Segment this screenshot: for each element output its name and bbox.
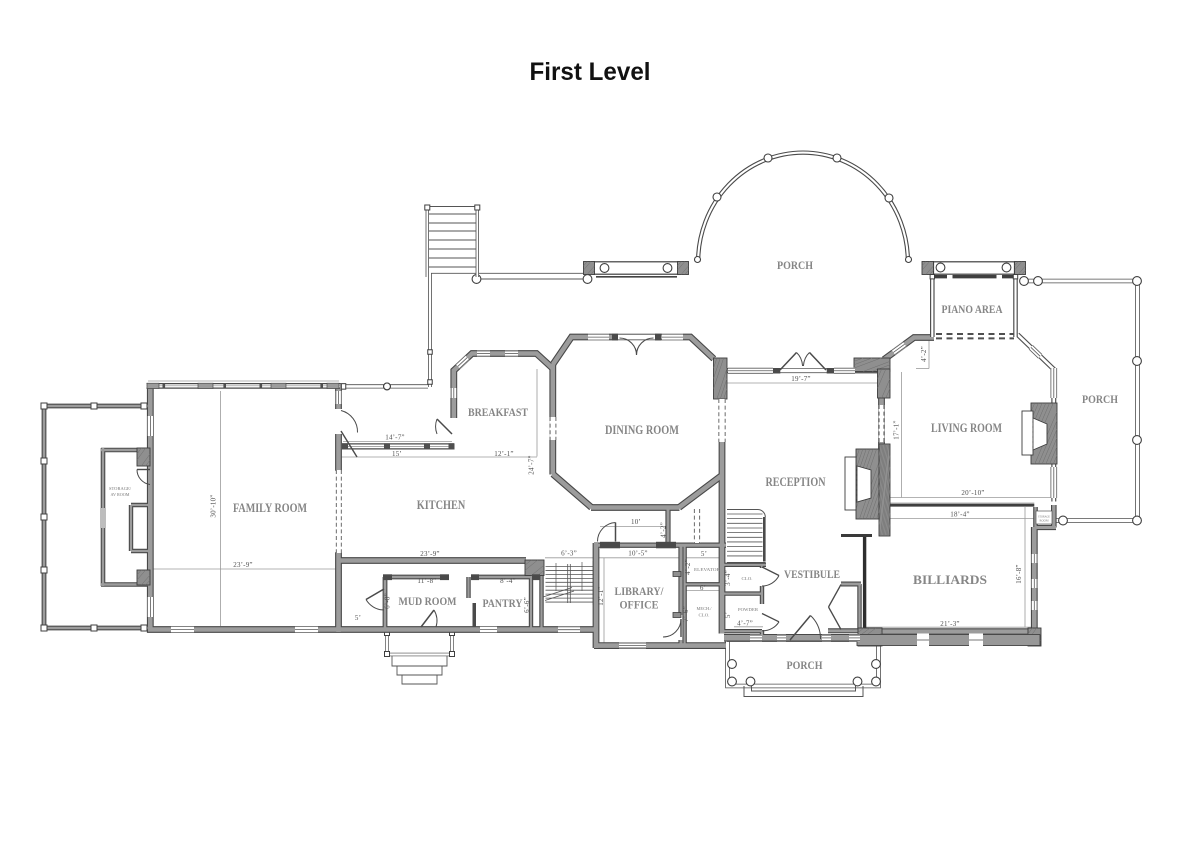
svg-text:BREAKFAST: BREAKFAST [468, 405, 528, 419]
svg-text:3’-4”: 3’-4” [724, 570, 732, 586]
svg-text:16’-8”: 16’-8” [1015, 564, 1023, 583]
svg-text:BILLIARDS: BILLIARDS [913, 573, 987, 587]
svg-text:17’-1”: 17’-1” [893, 420, 901, 439]
svg-text:RECEPTION: RECEPTION [766, 475, 826, 489]
svg-text:6’-6”: 6’-6” [523, 597, 531, 613]
svg-text:23’-9”: 23’-9” [420, 550, 439, 558]
svg-text:First Level: First Level [530, 58, 651, 86]
svg-text:5’: 5’ [724, 612, 732, 618]
svg-text:8’-4”: 8’-4” [500, 577, 516, 585]
svg-text:24’-7”: 24’-7” [528, 455, 536, 474]
svg-text:MUD ROOM: MUD ROOM [399, 594, 457, 608]
svg-text:LIVING ROOM: LIVING ROOM [931, 421, 1002, 435]
svg-text:15’: 15’ [392, 450, 402, 458]
svg-text:30’-10”: 30’-10” [210, 494, 218, 517]
svg-text:4’-7”: 4’-7” [737, 619, 753, 627]
svg-text:OFFICE: OFFICE [620, 598, 659, 612]
svg-text:12’-1”: 12’-1” [597, 586, 605, 605]
svg-text:ELEVATOR: ELEVATOR [694, 567, 721, 572]
svg-text:CLO.: CLO. [742, 576, 753, 581]
svg-text:5’: 5’ [355, 614, 361, 622]
svg-text:STORAGE/: STORAGE/ [109, 486, 132, 491]
svg-text:19’-7”: 19’-7” [791, 375, 810, 383]
svg-text:CLO.: CLO. [699, 613, 710, 618]
svg-text:ROOM: ROOM [1040, 519, 1049, 523]
svg-text:PANTRY: PANTRY [483, 596, 523, 610]
svg-text:KITCHEN: KITCHEN [417, 498, 466, 512]
svg-text:4’-2”: 4’-2” [684, 559, 692, 575]
svg-text:23’-9”: 23’-9” [233, 561, 252, 569]
svg-text:VESTIBULE: VESTIBULE [784, 569, 840, 581]
svg-text:AV ROOM: AV ROOM [111, 492, 130, 497]
svg-text:18’-4”: 18’-4” [950, 511, 969, 519]
svg-text:6’: 6’ [700, 584, 706, 592]
svg-text:10’: 10’ [631, 518, 641, 526]
svg-text:20’-10”: 20’-10” [961, 489, 984, 497]
svg-text:4’-2”: 4’-2” [920, 346, 928, 362]
svg-text:7’-6”: 7’-6” [682, 606, 690, 622]
svg-text:PORCH: PORCH [777, 260, 813, 272]
svg-text:11’-8”: 11’-8” [417, 577, 436, 585]
svg-text:PIANO AREA: PIANO AREA [942, 304, 1004, 316]
svg-text:6’-3”: 6’-3” [561, 550, 577, 558]
svg-text:21’-3”: 21’-3” [940, 620, 959, 628]
svg-text:DINING ROOM: DINING ROOM [605, 423, 679, 437]
svg-text:14’-7”: 14’-7” [385, 434, 404, 442]
svg-text:MECH./: MECH./ [697, 606, 713, 611]
svg-text:FAMILY ROOM: FAMILY ROOM [233, 501, 307, 515]
svg-text:POWDER: POWDER [738, 607, 759, 612]
svg-text:PORCH: PORCH [787, 660, 823, 672]
svg-text:4’-2”: 4’-2” [660, 522, 668, 538]
svg-text:6’-8”: 6’-8” [384, 593, 392, 609]
svg-text:PORCH: PORCH [1082, 394, 1118, 406]
svg-text:5’: 5’ [701, 550, 707, 558]
svg-text:LIBRARY/: LIBRARY/ [615, 584, 665, 598]
svg-text:12’-1”: 12’-1” [494, 450, 513, 458]
svg-text:10’-5”: 10’-5” [628, 550, 647, 558]
